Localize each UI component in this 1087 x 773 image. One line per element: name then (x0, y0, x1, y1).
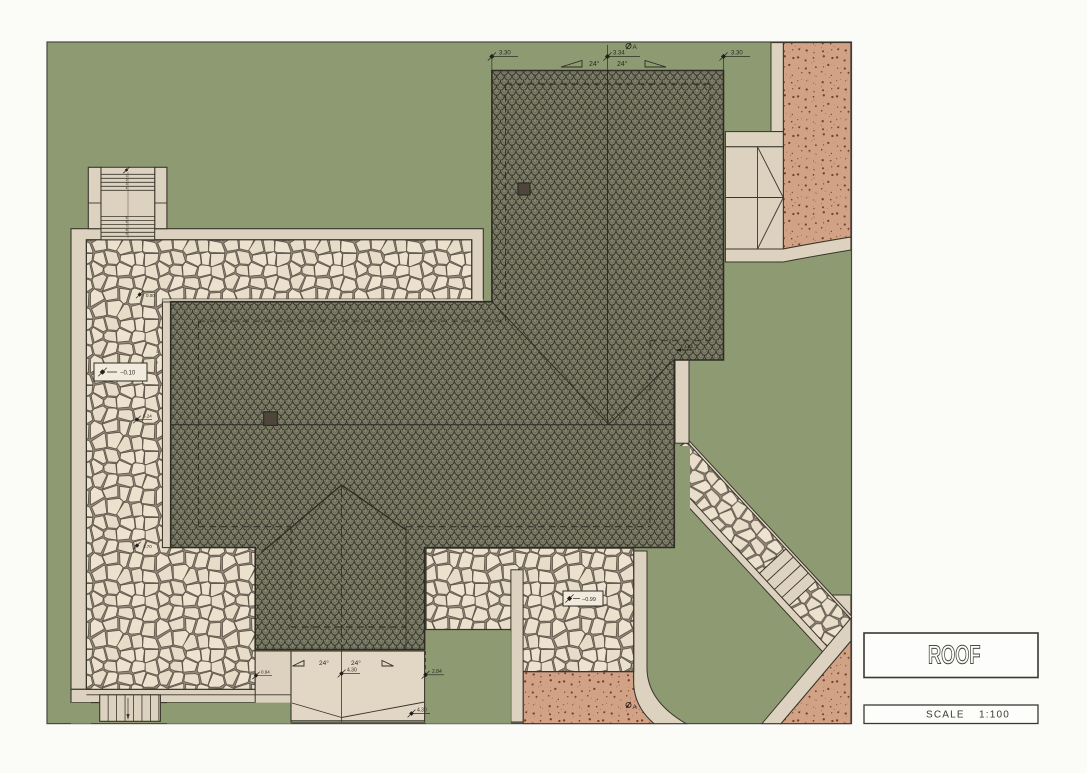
svg-text:−0.10: −0.10 (120, 371, 136, 377)
svg-text:A: A (633, 704, 638, 711)
svg-text:3.30: 3.30 (499, 51, 511, 57)
svg-text:4.30: 4.30 (347, 668, 357, 674)
svg-text:2.84: 2.84 (432, 669, 442, 675)
svg-text:24°: 24° (351, 659, 361, 667)
svg-text:4: 4 (126, 186, 128, 190)
svg-text:ROOF: ROOF (928, 640, 981, 670)
svg-text:24°: 24° (319, 659, 329, 667)
svg-text:3.30: 3.30 (731, 51, 743, 57)
svg-text:1:100: 1:100 (979, 710, 1010, 721)
svg-text:5.24: 5.24 (143, 414, 152, 419)
svg-text:−0.99: −0.99 (582, 597, 596, 603)
svg-text:24°: 24° (617, 60, 628, 68)
svg-text:7: 7 (156, 373, 158, 377)
svg-text:24°: 24° (589, 60, 600, 68)
svg-text:A: A (633, 44, 638, 51)
svg-text:0.00: 0.00 (146, 293, 155, 298)
svg-text:2: 2 (156, 361, 158, 365)
svg-text:3.34: 3.34 (613, 51, 625, 57)
svg-text:SCALE: SCALE (926, 710, 965, 721)
svg-text:1.70: 1.70 (143, 544, 152, 549)
svg-text:1: 1 (156, 350, 158, 354)
svg-text:4.30: 4.30 (417, 708, 427, 714)
svg-text:1.63: 1.63 (684, 344, 693, 349)
svg-text:0.94: 0.94 (261, 670, 270, 675)
svg-text:9: 9 (126, 232, 128, 236)
